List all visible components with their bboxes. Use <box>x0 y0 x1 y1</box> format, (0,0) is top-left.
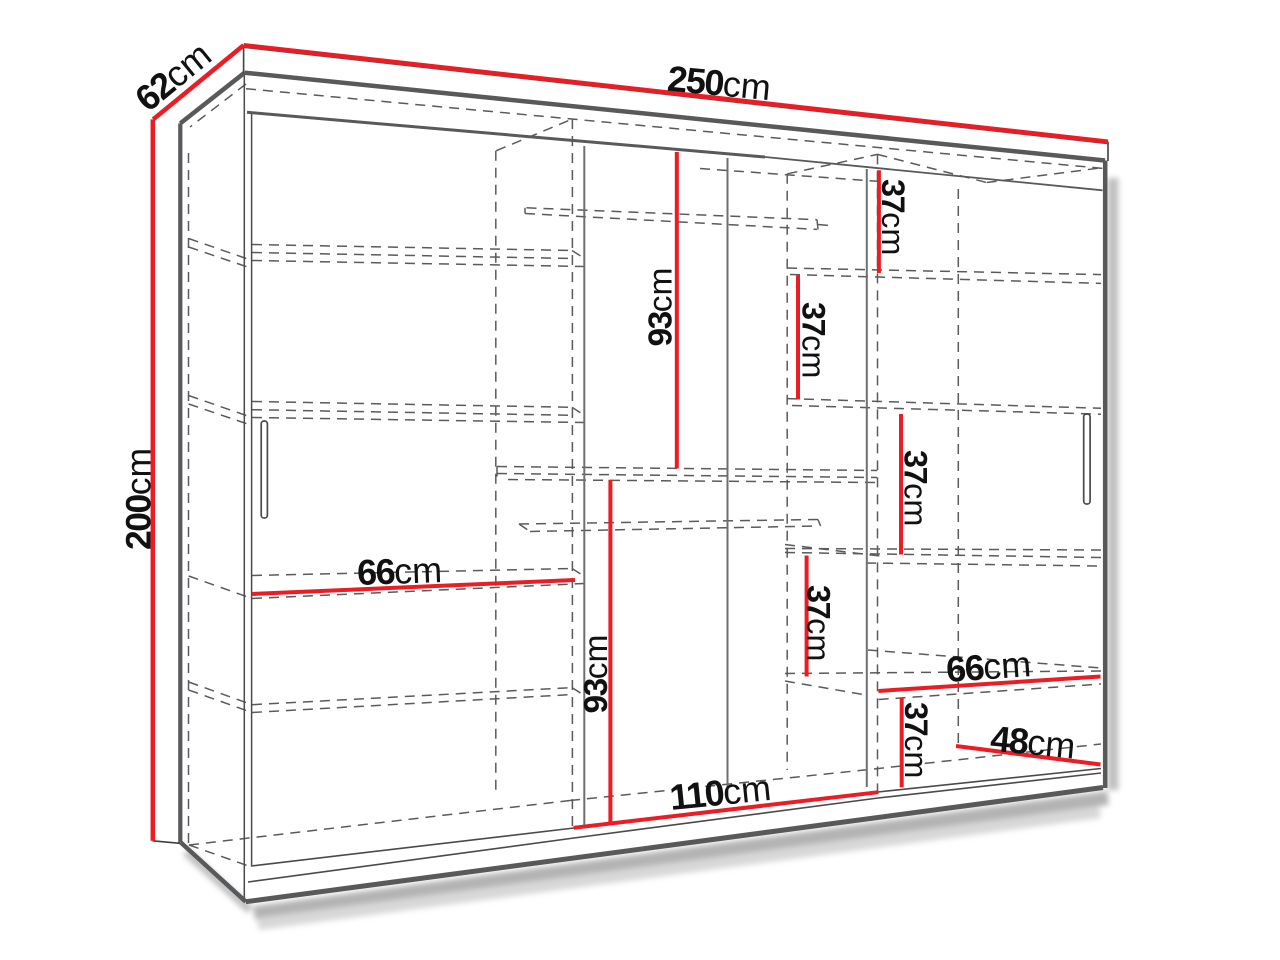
svg-text:93cm: 93cm <box>643 268 680 347</box>
svg-text:66cm: 66cm <box>945 643 1033 690</box>
svg-text:37cm: 37cm <box>898 450 934 526</box>
svg-text:93cm: 93cm <box>578 635 615 714</box>
svg-text:37cm: 37cm <box>875 179 911 255</box>
svg-text:37cm: 37cm <box>796 302 832 378</box>
svg-text:37cm: 37cm <box>898 702 934 778</box>
svg-text:48cm: 48cm <box>989 718 1078 767</box>
svg-text:200cm: 200cm <box>119 448 159 550</box>
svg-text:37cm: 37cm <box>801 585 837 661</box>
svg-text:66cm: 66cm <box>356 549 442 593</box>
